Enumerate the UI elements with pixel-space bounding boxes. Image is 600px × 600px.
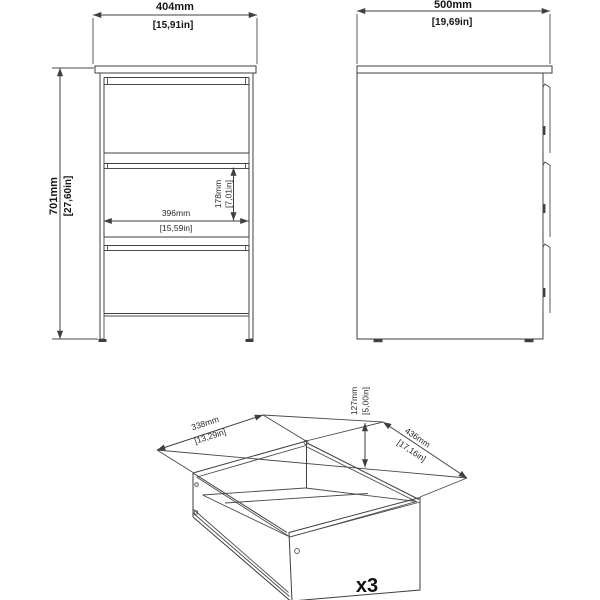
drawer-front-panel [289,498,420,600]
furniture-technical-drawing: 404mm [15,91in] 701mm [27,60in] 396mm [1… [0,0,600,600]
dimension-side-depth: 500mm [19,69in] [357,0,550,64]
dimension-drawer-height: 127mm [5,00in] [349,387,371,468]
drawer-box [193,441,420,600]
front-height-mm-label: 701mm [48,177,60,215]
left-screw-hole-1 [195,483,199,487]
front-left-foot [99,339,107,342]
dimension-drawer-inner-width: 396mm [15,59in] [104,208,249,233]
front-view: 404mm [15,91in] 701mm [27,60in] 396mm [1… [48,1,257,342]
front-screw-hole [295,549,300,554]
side-drawer-front-1 [543,84,550,153]
bottom-center-rail [225,494,368,504]
side-back-foot [525,339,534,342]
side-depth-mm-label: 500mm [434,0,472,11]
inner-height-inch-label: [7,01in] [224,180,234,208]
side-drawer-front-3 [543,244,550,313]
drawer-quantity-label: x3 [356,575,378,597]
dimension-drawer-width: 338mm [13,29in] [157,414,263,450]
side-depth-inch-label: [19,69in] [432,17,473,28]
dimension-front-width: 404mm [15,91in] [93,1,257,64]
front-width-inch-label: [15,91in] [153,20,194,31]
drawing-canvas: 404mm [15,91in] 701mm [27,60in] 396mm [1… [0,0,600,600]
front-right-foot [246,339,254,342]
side-drawer-front-2 [543,162,550,237]
side-view: 500mm [19,69in] [357,0,552,342]
inner-width-inch-label: [15,59in] [160,223,193,233]
drawer-height-mm-label: 127mm [349,387,359,415]
side-front-foot [374,339,383,342]
inner-height-mm-label: 178mm [213,180,223,208]
front-drawer-1 [104,78,249,154]
front-width-mm-label: 404mm [156,1,194,13]
inner-width-mm-label: 396mm [162,208,190,218]
drawer-view: 338mm [13,29in] 127mm [5,00in] 436mm [17… [157,387,467,600]
front-top-panel [95,66,256,73]
dimension-drawer-inner-height: 178mm [7,01in] [213,168,234,221]
front-height-inch-label: [27,60in] [63,176,74,217]
drawer-height-inch-label: [5,00in] [361,387,371,415]
dimension-drawer-depth: 436mm [17,16in] [383,422,467,478]
side-top-panel [357,66,552,73]
front-drawer-3 [104,246,249,314]
dimension-front-height: 701mm [27,60in] [48,68,98,339]
side-panel-body [357,73,543,339]
